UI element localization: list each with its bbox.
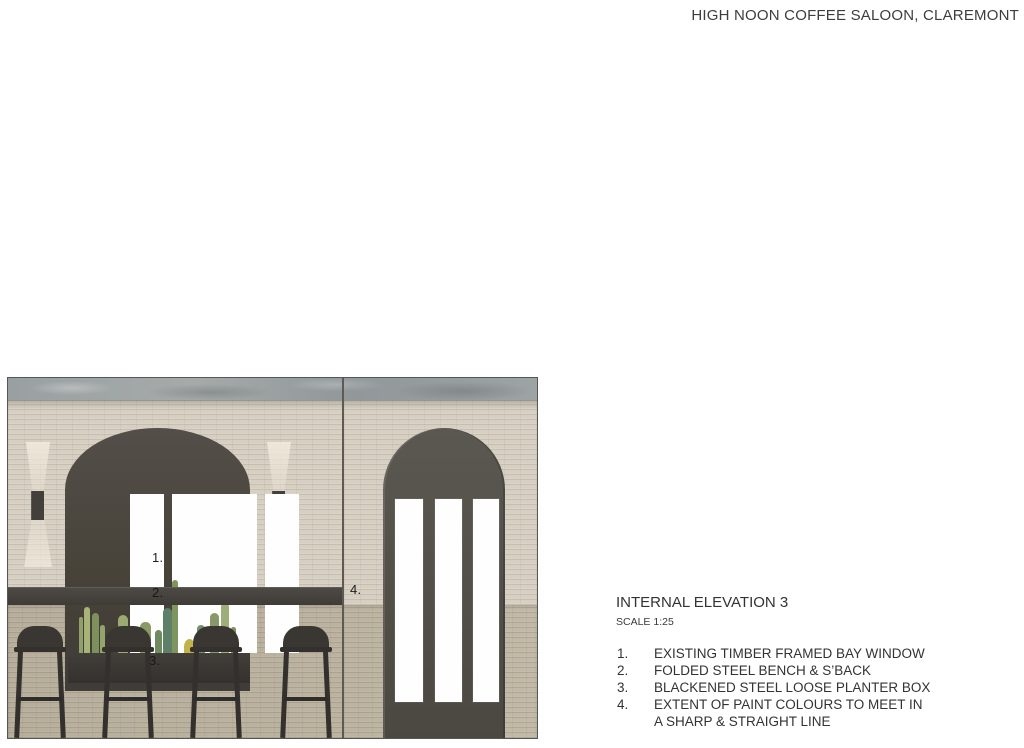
- callout-4: 4.: [350, 582, 361, 597]
- bar-stool-3: [188, 626, 244, 738]
- note-row: 4. EXTENT OF PAINT COLOURS TO MEET IN A …: [617, 696, 930, 730]
- bar-stool-4: [278, 626, 334, 738]
- cactus: [163, 608, 172, 655]
- note-text: BLACKENED STEEL LOOSE PLANTER BOX: [654, 679, 930, 696]
- callout-2: 2.: [152, 585, 163, 600]
- stool-footrest: [194, 697, 238, 701]
- note-row: 1. EXISTING TIMBER FRAMED BAY WINDOW: [617, 645, 930, 662]
- note-row: 2. FOLDED STEEL BENCH & S’BACK: [617, 662, 930, 679]
- cactus: [92, 613, 99, 655]
- lintel-shadow: [8, 401, 537, 409]
- wall-joint-line: [342, 378, 344, 738]
- note-number: 4.: [617, 696, 654, 730]
- stool-leg: [190, 651, 199, 738]
- drawing-sheet: HIGH NOON COFFEE SALOON, CLAREMONT: [0, 0, 1024, 748]
- cactus: [155, 630, 162, 655]
- cactus: [79, 617, 83, 655]
- callout-1: 1.: [152, 550, 163, 565]
- door-pane-1: [395, 499, 423, 702]
- note-text: EXTENT OF PAINT COLOURS TO MEET IN A SHA…: [654, 696, 923, 730]
- door-pane-2: [435, 499, 462, 702]
- note-text: EXISTING TIMBER FRAMED BAY WINDOW: [654, 645, 925, 662]
- note-number: 1.: [617, 645, 654, 662]
- elevation-notes: 1. EXISTING TIMBER FRAMED BAY WINDOW 2. …: [617, 645, 930, 730]
- stool-footrest: [106, 697, 150, 701]
- wall-sconce-left: [31, 491, 44, 520]
- stool-leg: [145, 651, 154, 738]
- note-row: 3. BLACKENED STEEL LOOSE PLANTER BOX: [617, 679, 930, 696]
- elevation-title: INTERNAL ELEVATION 3: [616, 594, 788, 611]
- note-number: 3.: [617, 679, 654, 696]
- stool-leg: [14, 651, 23, 738]
- elevation-scale: SCALE 1:25: [616, 616, 674, 628]
- bar-stool-1: [12, 626, 68, 738]
- door-pane-3: [473, 499, 499, 702]
- project-title: HIGH NOON COFFEE SALOON, CLAREMONT: [691, 7, 1019, 24]
- steel-bench: [8, 587, 342, 605]
- stool-leg: [323, 651, 332, 738]
- stool-leg: [102, 651, 111, 738]
- stool-footrest: [18, 697, 62, 701]
- stool-footrest: [284, 697, 328, 701]
- stool-leg: [233, 651, 242, 738]
- note-text: FOLDED STEEL BENCH & S’BACK: [654, 662, 871, 679]
- bar-stool-2: [100, 626, 156, 738]
- internal-elevation-drawing: 1. 2. 3. 4.: [7, 377, 538, 739]
- cactus: [84, 607, 90, 655]
- concrete-lintel: [8, 378, 537, 400]
- stool-leg: [280, 651, 289, 738]
- stool-leg: [57, 651, 66, 738]
- note-number: 2.: [617, 662, 654, 679]
